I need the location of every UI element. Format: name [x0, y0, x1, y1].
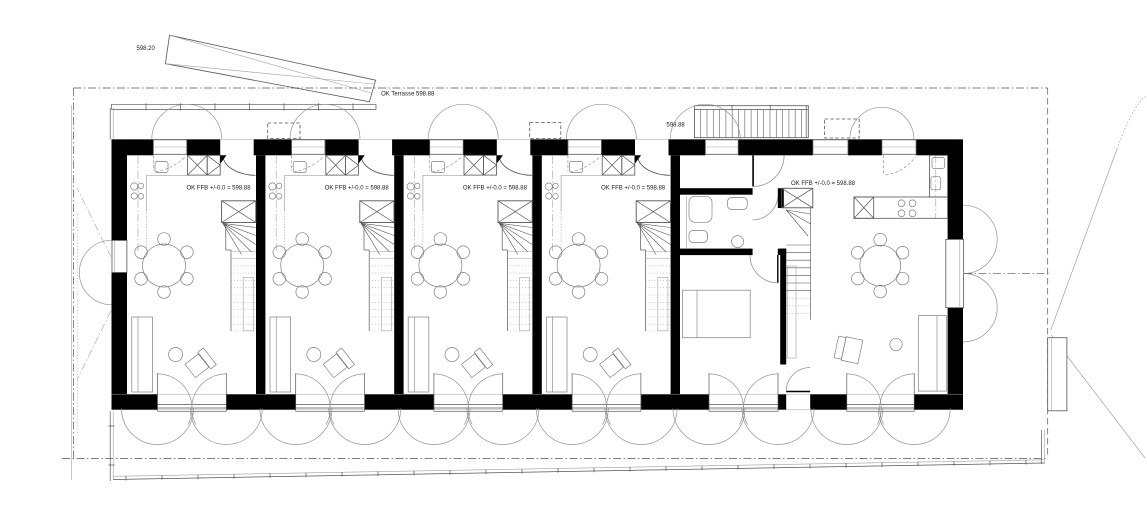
svg-text:598.20: 598.20	[137, 46, 156, 52]
svg-text:OK FFB +/-0.0 = 598.88: OK FFB +/-0.0 = 598.88	[187, 186, 252, 192]
svg-text:OK FFB +/-0.0 = 598.88: OK FFB +/-0.0 = 598.88	[325, 186, 390, 192]
svg-text:OK Terrasse 598.88: OK Terrasse 598.88	[381, 92, 435, 98]
svg-text:OK FFB +/-0.0 = 598.88: OK FFB +/-0.0 = 598.88	[791, 181, 856, 187]
svg-text:598.88: 598.88	[666, 123, 685, 129]
svg-text:OK FFB +/-0.0 = 598.88: OK FFB +/-0.0 = 598.88	[601, 186, 666, 192]
svg-text:OK FFB +/-0.0 = 598.88: OK FFB +/-0.0 = 598.88	[463, 186, 528, 192]
